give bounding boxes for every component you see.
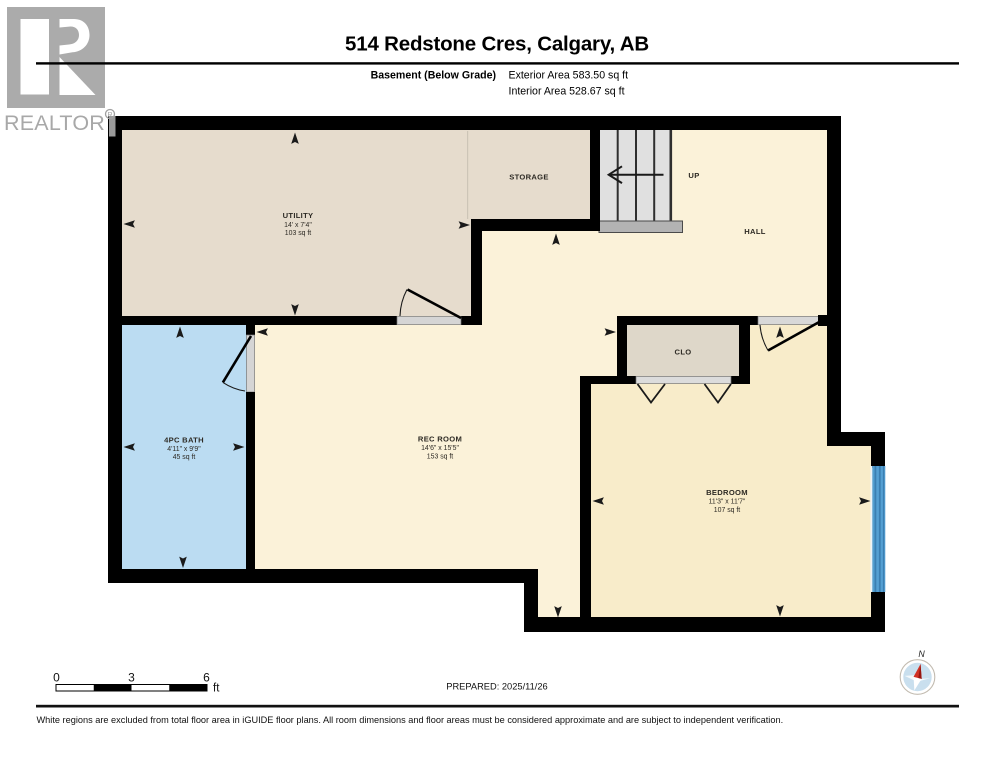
svg-text:Basement (Below Grade): Basement (Below Grade) xyxy=(371,70,496,82)
svg-text:3: 3 xyxy=(128,671,135,685)
svg-text:14'6" x 15'5": 14'6" x 15'5" xyxy=(421,445,459,452)
svg-text:BEDROOM: BEDROOM xyxy=(706,488,748,497)
svg-text:Exterior Area 583.50 sq ft: Exterior Area 583.50 sq ft xyxy=(509,70,629,82)
svg-text:0: 0 xyxy=(53,671,60,685)
svg-text:REALTOR: REALTOR xyxy=(4,111,105,135)
svg-text:4'11" x 9'9": 4'11" x 9'9" xyxy=(167,446,201,453)
svg-text:R: R xyxy=(107,112,112,119)
svg-text:11'3" x 11'7": 11'3" x 11'7" xyxy=(709,499,746,506)
svg-text:103 sq ft: 103 sq ft xyxy=(285,230,312,237)
svg-text:14' x 7'4": 14' x 7'4" xyxy=(284,222,312,229)
svg-text:STORAGE: STORAGE xyxy=(509,173,549,182)
svg-text:6: 6 xyxy=(203,671,210,685)
svg-text:UTILITY: UTILITY xyxy=(283,211,314,220)
svg-text:CLO: CLO xyxy=(675,347,692,356)
svg-text:HALL: HALL xyxy=(744,227,766,236)
svg-text:UP: UP xyxy=(688,171,699,180)
svg-text:ft: ft xyxy=(213,683,220,695)
svg-text:PREPARED: 2025/11/26: PREPARED: 2025/11/26 xyxy=(446,682,547,692)
svg-text:107 sq ft: 107 sq ft xyxy=(714,507,741,514)
svg-text:514 Redstone Cres, Calgary, AB: 514 Redstone Cres, Calgary, AB xyxy=(345,33,649,56)
svg-text:White regions are excluded fro: White regions are excluded from total fl… xyxy=(37,715,784,725)
svg-text:N: N xyxy=(918,649,925,659)
svg-text:Interior Area 528.67 sq ft: Interior Area 528.67 sq ft xyxy=(509,86,625,98)
svg-text:45 sq ft: 45 sq ft xyxy=(173,454,196,461)
svg-text:4PC BATH: 4PC BATH xyxy=(164,435,204,444)
svg-text:REC ROOM: REC ROOM xyxy=(418,435,462,444)
svg-text:153 sq ft: 153 sq ft xyxy=(427,454,454,461)
